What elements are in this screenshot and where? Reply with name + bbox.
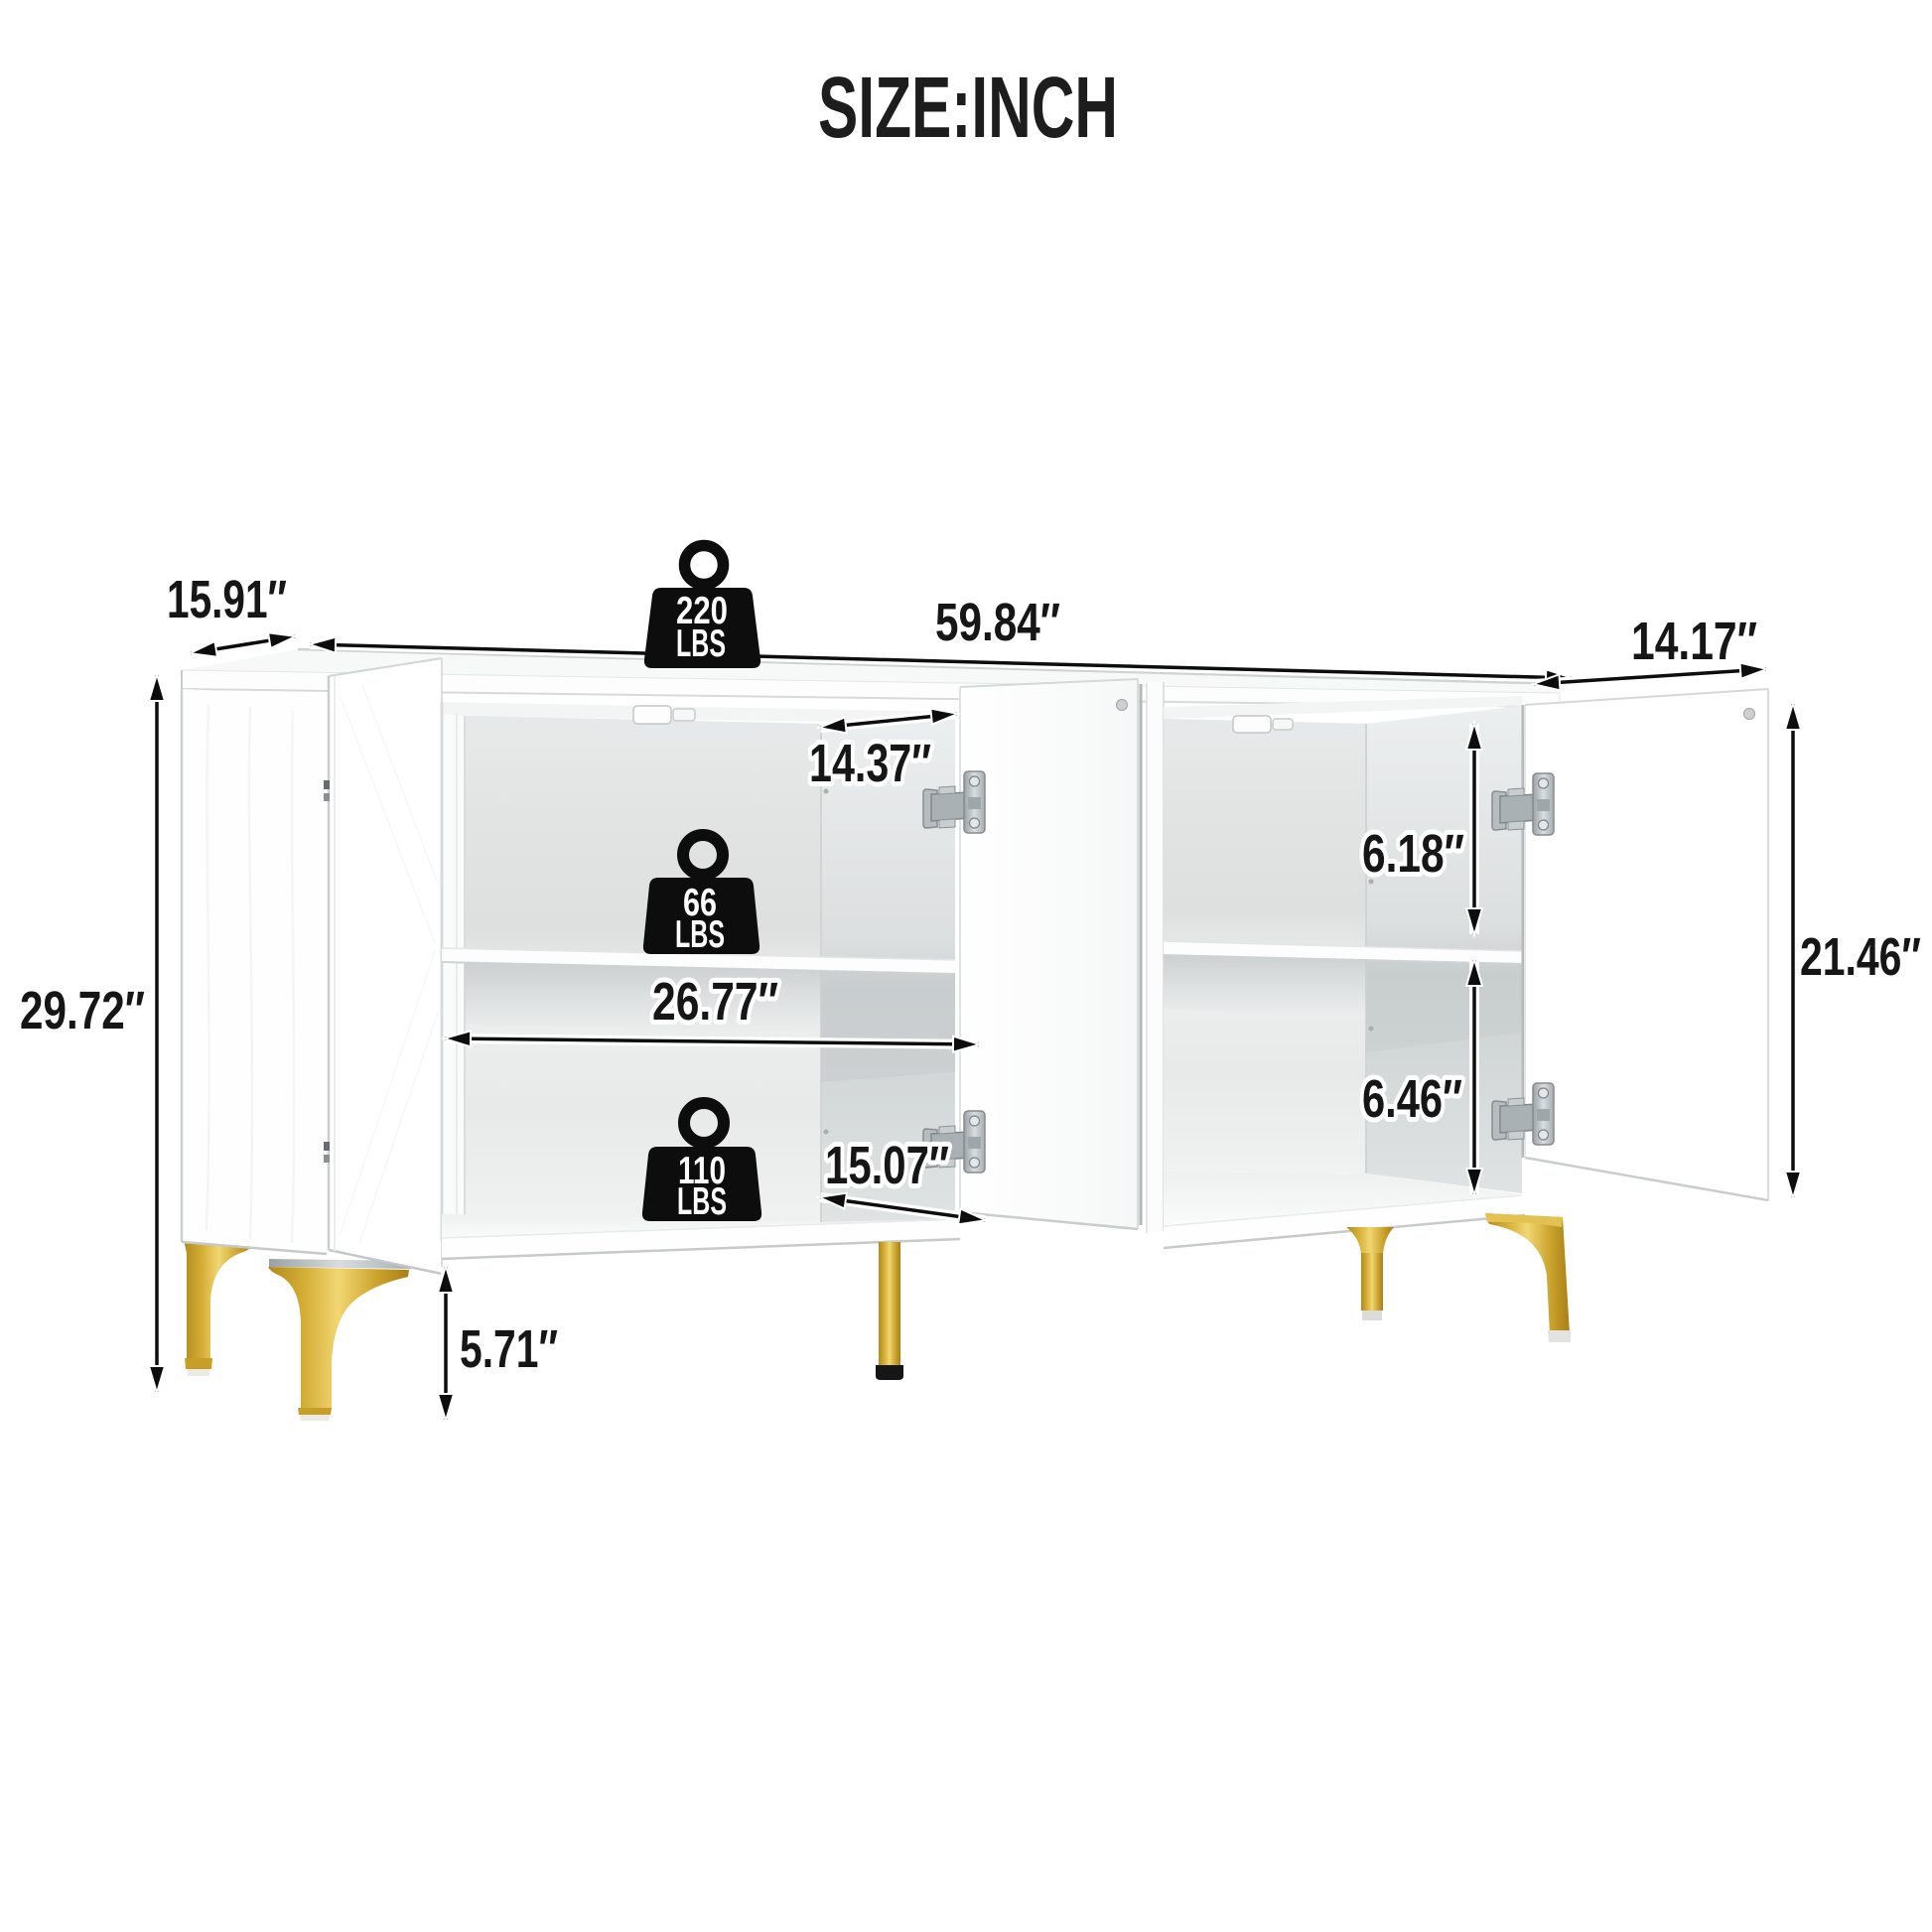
- svg-text:14.17″: 14.17″: [1631, 612, 1757, 671]
- svg-text:6.46″: 6.46″: [1362, 1069, 1462, 1129]
- svg-text:LBS: LBS: [675, 913, 725, 956]
- svg-text:21.46″: 21.46″: [1800, 927, 1921, 987]
- svg-text:LBS: LBS: [677, 1180, 727, 1223]
- svg-text:29.72″: 29.72″: [20, 981, 145, 1040]
- svg-text:15.91″: 15.91″: [167, 570, 287, 629]
- svg-text:SIZE:INCH: SIZE:INCH: [818, 60, 1118, 156]
- svg-text:LBS: LBS: [676, 622, 726, 665]
- svg-text:5.71″: 5.71″: [460, 1319, 558, 1379]
- svg-text:59.84″: 59.84″: [935, 593, 1060, 652]
- svg-text:6.18″: 6.18″: [1362, 824, 1464, 884]
- svg-text:26.77″: 26.77″: [652, 972, 778, 1032]
- svg-text:15.07″: 15.07″: [825, 1136, 949, 1195]
- svg-text:14.37″: 14.37″: [809, 734, 931, 793]
